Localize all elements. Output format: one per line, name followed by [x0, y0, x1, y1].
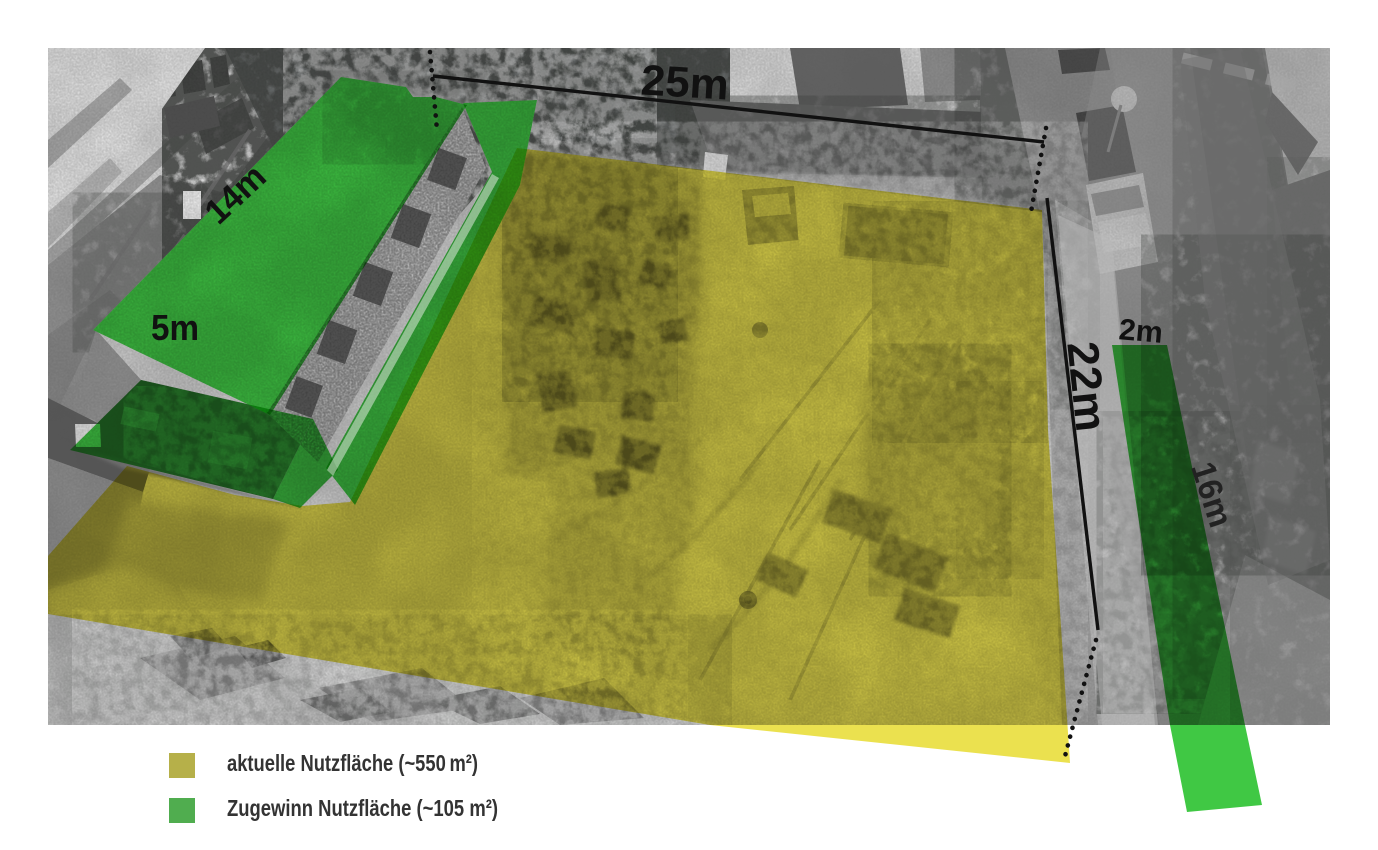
- svg-text:5m: 5m: [151, 307, 199, 348]
- svg-text:aktuelle Nutzfläche (~550 m²): aktuelle Nutzfläche (~550 m²): [227, 750, 478, 776]
- svg-text:2m: 2m: [1117, 313, 1164, 350]
- svg-text:22m: 22m: [1057, 339, 1115, 434]
- svg-text:25m: 25m: [639, 56, 730, 109]
- svg-text:Zugewinn Nutzfläche (~105 m²): Zugewinn Nutzfläche (~105 m²): [227, 795, 498, 821]
